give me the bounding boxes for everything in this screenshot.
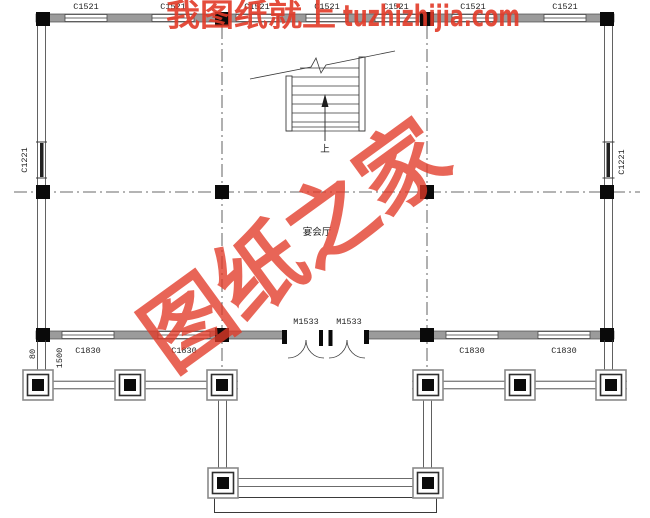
- stair-up-label: 上: [320, 144, 330, 155]
- window-label: C1830: [459, 346, 485, 356]
- floor-plan-drawing: 上 C1521 C152: [0, 0, 650, 518]
- window-label: C1521: [73, 2, 99, 12]
- door-label: M1533: [293, 317, 319, 327]
- window-label: C1830: [551, 346, 577, 356]
- porch-column: [208, 468, 238, 498]
- stair-direction-arrow: [322, 94, 329, 141]
- porch-column: [413, 370, 443, 400]
- dimension-label: 1500: [55, 348, 65, 368]
- floor-plan-canvas: 上 C1521 C152: [0, 0, 650, 518]
- porch-column: [505, 370, 535, 400]
- porch-column: [115, 370, 145, 400]
- door-label: M1533: [336, 317, 362, 327]
- porch-column: [596, 370, 626, 400]
- window-label: C1221: [20, 147, 30, 173]
- dimension-label: 80: [28, 349, 38, 359]
- porch-column: [23, 370, 53, 400]
- left-wall: [36, 23, 47, 331]
- diagonal-watermark: 图纸之家: [123, 100, 468, 390]
- entry-step: [215, 498, 437, 513]
- porch-column: [413, 468, 443, 498]
- entrance-doors: [282, 330, 369, 358]
- top-watermark-cn: 我图纸就上: [166, 0, 336, 34]
- stair-break-line: [250, 51, 395, 79]
- right-wall: [603, 23, 615, 331]
- porch-column: [207, 370, 237, 400]
- bottom-wall: [36, 331, 614, 339]
- window-label: C1521: [552, 2, 578, 12]
- window-label: C1830: [75, 346, 101, 356]
- top-watermark-domain: tuzhizhijia.com: [343, 0, 520, 33]
- window-label: C1221: [617, 149, 627, 175]
- porch: [23, 340, 627, 513]
